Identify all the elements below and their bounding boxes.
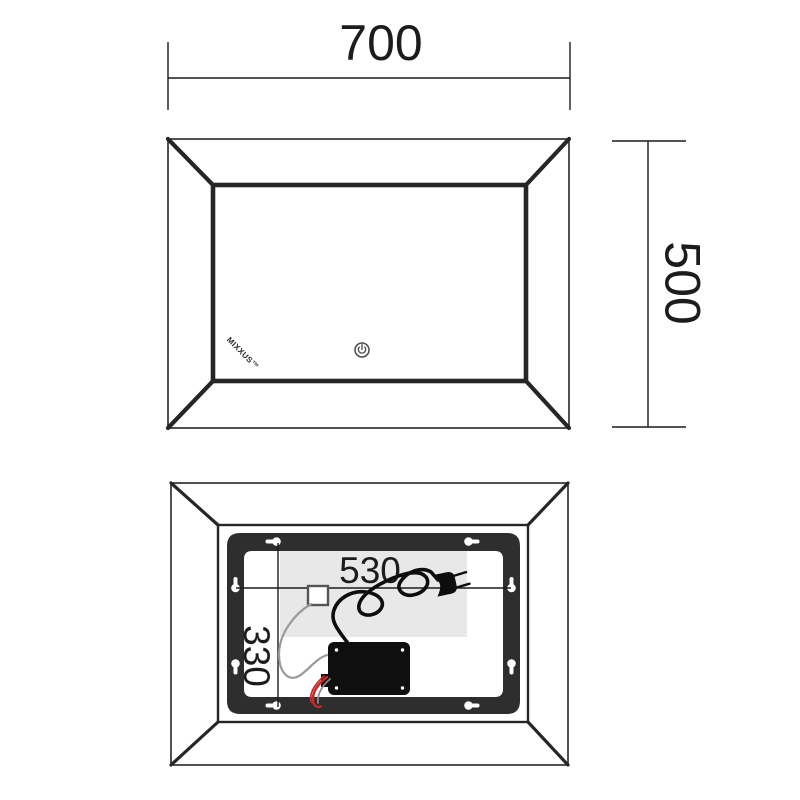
dim-530-label: 530 <box>339 550 401 591</box>
driver-box-body <box>328 642 410 695</box>
dim-500-label: 500 <box>655 241 711 324</box>
driver-box <box>321 642 410 695</box>
front-bevel-diagonal-tl <box>168 139 213 185</box>
back-bevel-diagonal-tr <box>528 483 568 525</box>
back-bevel-diagonal-bl <box>171 722 218 765</box>
power-icon <box>355 343 369 357</box>
back-bevel-diagonal-tl <box>171 483 218 525</box>
front-outer-frame <box>168 139 569 428</box>
front-bevel-diagonal-tr <box>526 139 569 185</box>
back-view: 530 330 <box>171 483 568 765</box>
technical-drawing-canvas: 700 500 MIXXUS™ <box>0 0 800 800</box>
dim-330-label: 330 <box>236 625 277 687</box>
brand-logo: MIXXUS™ <box>225 335 261 371</box>
dimension-height-500: 500 <box>612 141 711 427</box>
front-view: MIXXUS™ <box>168 139 569 428</box>
back-bevel-diagonal-br <box>528 722 568 765</box>
cable-entry-box <box>308 586 328 605</box>
front-bevel-diagonal-bl <box>168 381 213 428</box>
dim-700-label: 700 <box>339 15 422 71</box>
mirror-drawing: 700 500 MIXXUS™ <box>0 0 800 800</box>
front-bevel-diagonal-br <box>526 381 569 428</box>
dimension-width-700: 700 <box>168 15 570 110</box>
